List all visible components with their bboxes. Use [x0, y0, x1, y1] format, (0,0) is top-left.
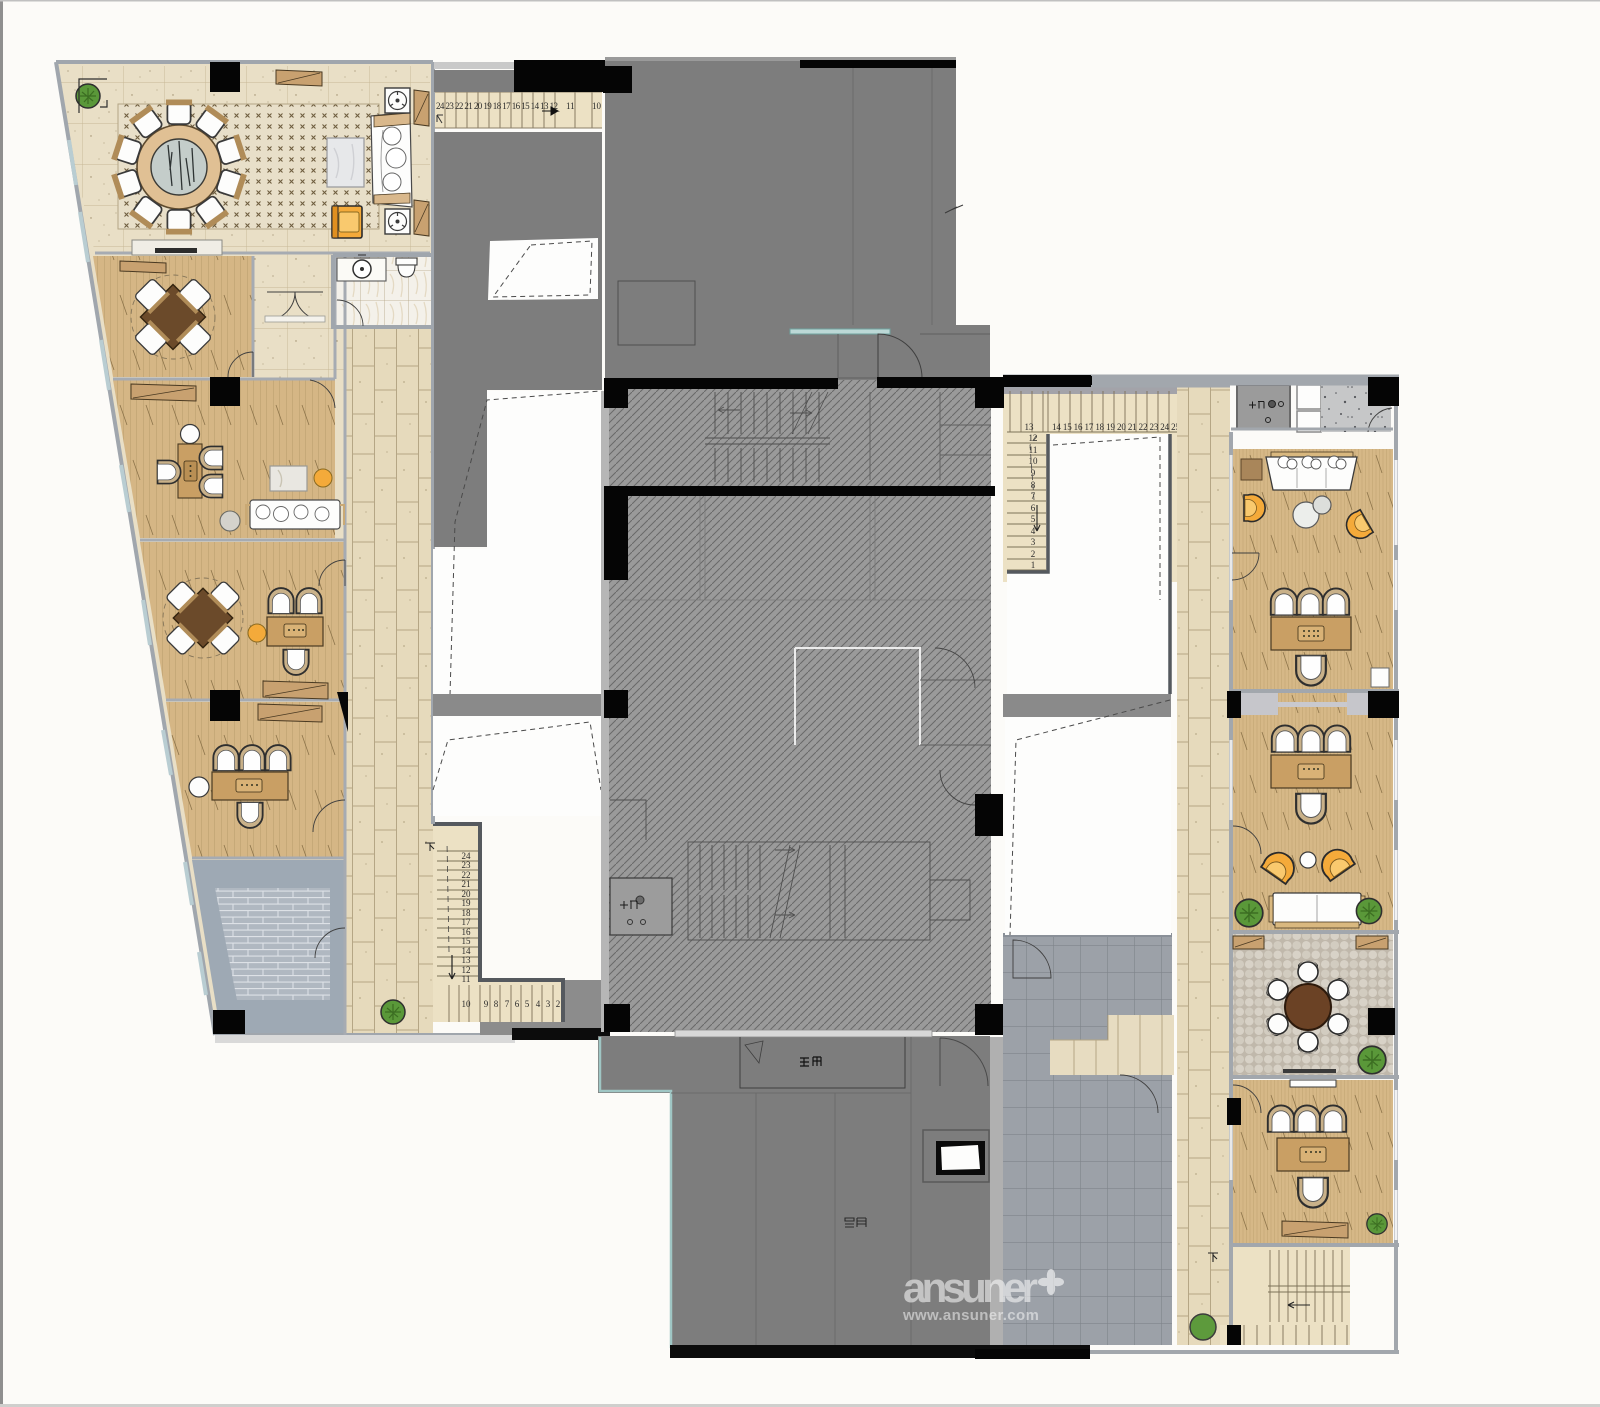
svg-text:13: 13 [462, 955, 472, 965]
svg-text:3: 3 [546, 999, 551, 1009]
svg-text:9: 9 [484, 999, 489, 1009]
svg-text:www.ansuner.com: www.ansuner.com [902, 1307, 1040, 1324]
svg-text:6: 6 [515, 999, 520, 1009]
svg-text:11: 11 [462, 974, 471, 984]
svg-text:24 23 22 21 20 19 18 17 16 15: 24 23 22 21 20 19 18 17 16 15 14 13 12 [436, 101, 558, 111]
svg-text:10: 10 [592, 101, 602, 111]
svg-text:5: 5 [1031, 514, 1036, 524]
svg-text:2: 2 [556, 999, 561, 1009]
svg-text:13: 13 [1025, 422, 1035, 432]
svg-text:15: 15 [462, 936, 472, 946]
svg-text:11: 11 [566, 101, 575, 111]
svg-text:23: 23 [462, 860, 472, 870]
svg-text:1: 1 [1031, 560, 1036, 570]
svg-text:2: 2 [1031, 549, 1036, 559]
svg-text:5: 5 [525, 999, 530, 1009]
svg-text:8: 8 [494, 999, 499, 1009]
svg-text:10: 10 [462, 999, 472, 1009]
svg-text:19: 19 [462, 898, 472, 908]
svg-text:4: 4 [536, 999, 541, 1009]
svg-text:10: 10 [1029, 456, 1039, 466]
svg-text:21: 21 [462, 879, 471, 889]
svg-text:7: 7 [505, 999, 510, 1009]
svg-text:17: 17 [462, 917, 472, 927]
svg-text:7: 7 [1031, 491, 1036, 501]
svg-text:ansuner: ansuner [903, 1264, 1038, 1311]
svg-text:14 15 16 17 18 19 20 21 22 23: 14 15 16 17 18 19 20 21 22 23 24 25 [1052, 422, 1181, 432]
svg-text:6: 6 [1031, 503, 1036, 513]
svg-text:12: 12 [1029, 433, 1038, 443]
svg-text:3: 3 [1031, 537, 1036, 547]
